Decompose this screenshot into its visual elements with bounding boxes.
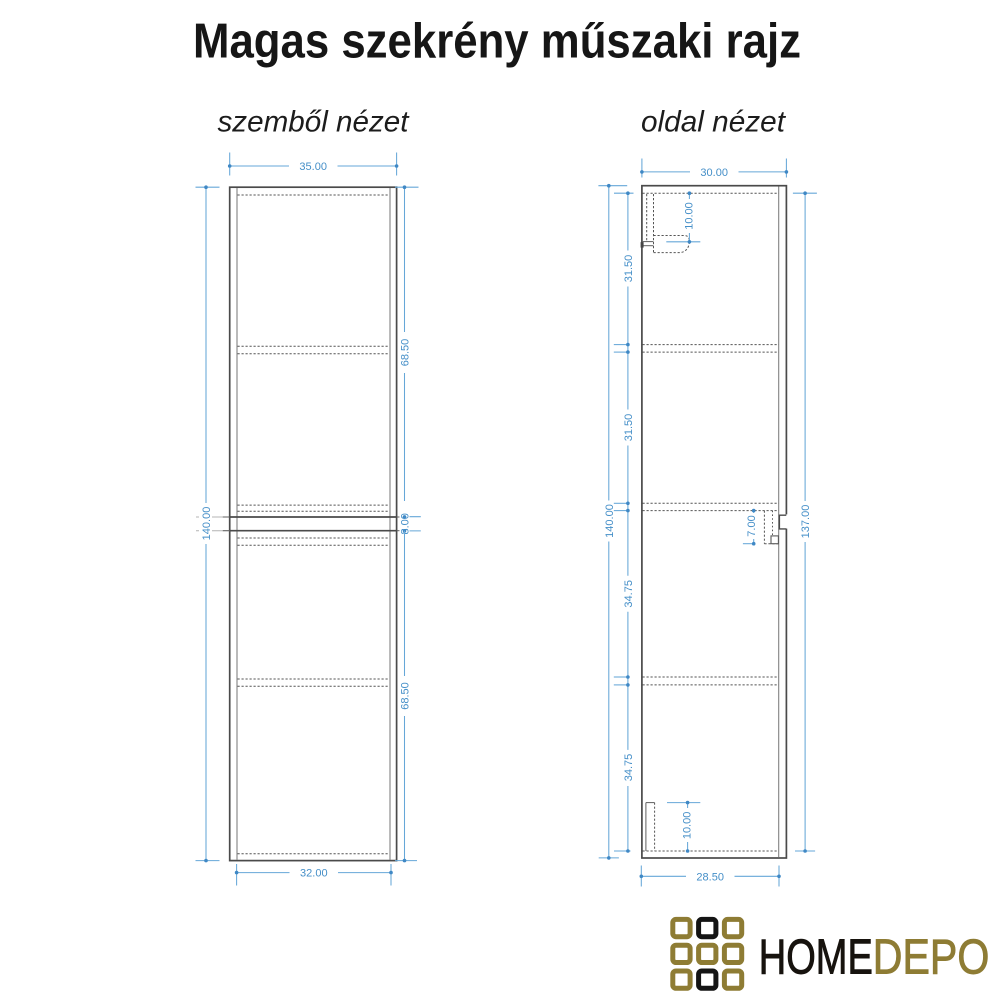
svg-text:35.00: 35.00 bbox=[299, 161, 327, 173]
svg-text:31.50: 31.50 bbox=[623, 255, 635, 283]
svg-text:32.00: 32.00 bbox=[300, 868, 328, 880]
svg-text:34.75: 34.75 bbox=[623, 580, 635, 608]
svg-text:szemből nézet: szemből nézet bbox=[218, 106, 411, 139]
svg-text:10.00: 10.00 bbox=[681, 812, 693, 840]
svg-text:34.75: 34.75 bbox=[623, 754, 635, 782]
svg-text:30.00: 30.00 bbox=[700, 167, 728, 179]
svg-text:68.50: 68.50 bbox=[400, 339, 412, 367]
svg-text:140.00: 140.00 bbox=[201, 507, 213, 541]
svg-text:10.00: 10.00 bbox=[684, 202, 696, 230]
svg-text:137.00: 137.00 bbox=[800, 505, 812, 539]
svg-text:28.50: 28.50 bbox=[696, 871, 724, 883]
svg-text:HOME: HOME bbox=[759, 931, 873, 985]
svg-text:31.50: 31.50 bbox=[623, 414, 635, 442]
svg-text:68.50: 68.50 bbox=[400, 682, 412, 710]
svg-text:7.00: 7.00 bbox=[746, 515, 758, 536]
svg-text:Magas szekrény műszaki rajz: Magas szekrény műszaki rajz bbox=[193, 15, 801, 69]
svg-text:140.00: 140.00 bbox=[604, 504, 616, 538]
svg-text:oldal nézet: oldal nézet bbox=[641, 106, 787, 139]
svg-text:DEPO: DEPO bbox=[873, 931, 990, 985]
